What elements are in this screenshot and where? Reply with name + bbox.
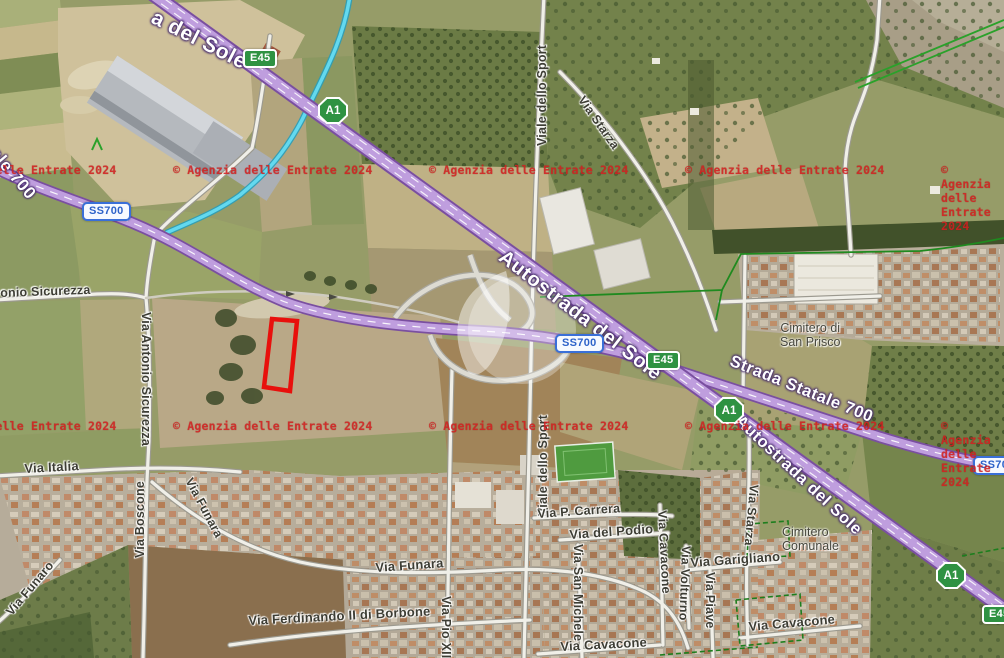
place-label-line: Comunale xyxy=(782,540,839,554)
copyright-watermark: © Agenzia delle Entrate 2024 xyxy=(941,419,1004,489)
satellite-map[interactable]: a del Sole tale 700 Autostrada del Sole … xyxy=(0,0,1004,658)
route-badge-ss700-mid: SS700 xyxy=(555,334,604,353)
street-label-via-boscone: Via Boscone xyxy=(134,481,148,558)
copyright-watermark: © Agenzia delle Entrate 2024 xyxy=(685,419,884,433)
route-badge-a1-bottom: A1 xyxy=(936,562,966,589)
route-badge-a1-top: A1 xyxy=(318,97,348,124)
street-label-via-pio-xii: Via Pio XII xyxy=(438,596,452,658)
copyright-watermark: © Agenzia delle Entrate 2024 xyxy=(0,419,116,433)
place-label-line: San Prisco xyxy=(780,336,840,350)
route-badge-a1-text: A1 xyxy=(938,564,964,587)
street-label-via-san-michele: Via San Michele xyxy=(570,544,584,641)
street-label-via-italia: Via Italia xyxy=(24,459,79,476)
street-label-via-piave: Via Piave xyxy=(702,572,716,628)
place-label-line: Cimitero xyxy=(782,526,839,540)
copyright-watermark: © Agenzia delle Entrate 2024 xyxy=(173,163,372,177)
place-label-cimitero-san-prisco: Cimitero di San Prisco xyxy=(780,322,840,350)
place-label-line: Cimitero di xyxy=(780,322,840,336)
copyright-watermark: © Agenzia delle Entrate 2024 xyxy=(429,163,628,177)
street-label-antonio-sicurezza-v: Via Antonio Sicurezza xyxy=(138,312,152,446)
route-badge-ss700-west: SS700 xyxy=(82,202,131,221)
copyright-watermark: © Agenzia delle Entrate 2024 xyxy=(173,419,372,433)
place-label-cimitero-comunale: Cimitero Comunale xyxy=(782,526,839,554)
copyright-watermark: © Agenzia delle Entrate 2024 xyxy=(685,163,884,177)
sports-field xyxy=(555,442,615,482)
route-badge-e45-bottom: E45 xyxy=(982,605,1004,624)
street-label-viale-dello-sport-top: Viale dello Sport xyxy=(536,45,550,146)
route-badge-e45-mid: E45 xyxy=(646,351,680,370)
route-badge-e45-top: E45 xyxy=(243,49,277,68)
copyright-watermark: © Agenzia delle Entrate 2024 xyxy=(941,163,1004,233)
copyright-watermark: © Agenzia delle Entrate 2024 xyxy=(429,419,628,433)
route-badge-a1-text: A1 xyxy=(320,99,346,122)
copyright-watermark: © Agenzia delle Entrate 2024 xyxy=(0,163,116,177)
